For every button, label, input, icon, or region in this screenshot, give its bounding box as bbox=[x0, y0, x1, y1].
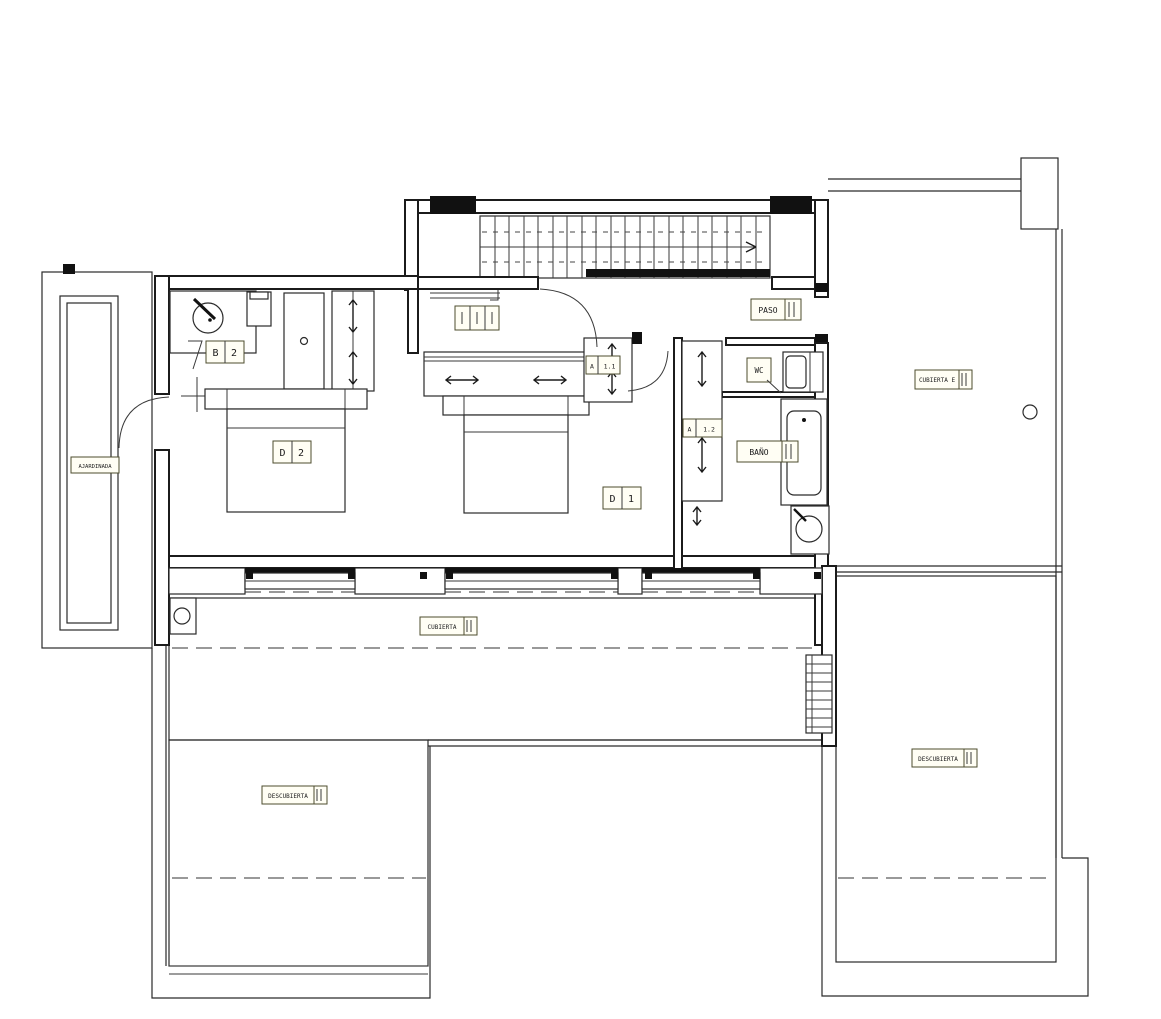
wall-main-bottom bbox=[169, 556, 822, 568]
wall-corridor-b bbox=[772, 277, 815, 289]
window-lintel bbox=[642, 568, 760, 573]
label-descubierta-right: DESCUBIERTA bbox=[912, 749, 977, 767]
floor-plan-canvas: PASO WC BAÑO B 2 D 2 D bbox=[0, 0, 1161, 1019]
label-b2: B 2 bbox=[206, 341, 244, 363]
d2-number: 2 bbox=[298, 448, 304, 459]
wing-top-right-step bbox=[1021, 158, 1058, 229]
column-right bbox=[770, 196, 812, 214]
label-wc: WC bbox=[747, 358, 781, 393]
wall-main-top bbox=[155, 276, 418, 289]
bano-label: BAÑO bbox=[749, 447, 768, 457]
a12-number: 1.2 bbox=[703, 426, 715, 434]
shower-drain-icon bbox=[301, 338, 308, 345]
shower-drain-icon bbox=[796, 516, 822, 542]
wall-wc-top bbox=[726, 338, 815, 345]
window-band bbox=[169, 568, 822, 594]
toilet-bowl bbox=[786, 356, 806, 388]
wardrobe-symbol-box bbox=[455, 306, 499, 330]
terrace-cubierta-center bbox=[169, 598, 822, 740]
door-swing-arc bbox=[119, 397, 169, 448]
column-left bbox=[430, 196, 476, 214]
label-cubierta-centro: CUBIERTA bbox=[420, 617, 477, 635]
terrace-edge-double-line bbox=[169, 966, 428, 974]
pier bbox=[618, 568, 642, 594]
label-d1: D 1 bbox=[603, 487, 641, 509]
label-a11: A 1.1 bbox=[586, 356, 620, 374]
window-lintel bbox=[245, 568, 355, 573]
door-swing-arc bbox=[628, 351, 668, 391]
d1-number: 1 bbox=[628, 494, 634, 505]
pergola-column-hatch bbox=[806, 655, 832, 733]
planter-post bbox=[63, 264, 75, 274]
wall-left-upper bbox=[155, 276, 169, 394]
cubierta-este-label: CUBIERTA E bbox=[919, 377, 956, 384]
window-2 bbox=[445, 568, 618, 592]
descubierta-right-label: DESCUBIERTA bbox=[918, 756, 958, 763]
wall-corridor-a bbox=[418, 277, 538, 289]
wing-bottom-edge bbox=[836, 566, 1062, 572]
bedroom-d1 bbox=[424, 306, 592, 513]
d1-letter: D bbox=[609, 494, 615, 505]
pier bbox=[355, 568, 445, 594]
wall-joint-b bbox=[815, 334, 828, 342]
label-descubierta-left: DESCUBIERTA bbox=[262, 786, 327, 804]
pier bbox=[169, 568, 245, 594]
descubierta-left-label: DESCUBIERTA bbox=[268, 793, 308, 800]
east-wing bbox=[828, 158, 1062, 572]
b2-number: 2 bbox=[231, 348, 237, 359]
washbasin-icon bbox=[193, 303, 223, 333]
label-cell bbox=[785, 299, 801, 320]
wall-stair-right bbox=[815, 200, 828, 290]
a11-letter: A bbox=[590, 363, 594, 371]
boundary-bottom-right bbox=[822, 746, 1088, 996]
a11-number: 1.1 bbox=[604, 363, 616, 371]
floor-plan-page: PASO WC BAÑO B 2 D 2 D bbox=[0, 0, 1161, 1019]
planter-ajardinada bbox=[42, 264, 152, 648]
wall-left-lower bbox=[155, 450, 169, 645]
mullion-mark bbox=[348, 572, 355, 579]
mullion-mark bbox=[246, 572, 253, 579]
terrace-tiles-left bbox=[169, 740, 428, 966]
b2-letter: B bbox=[212, 348, 218, 359]
d2-letter: D bbox=[279, 448, 285, 459]
wall-d2-partition bbox=[408, 289, 418, 353]
wing-top-wall bbox=[828, 179, 1021, 191]
mullion-mark bbox=[753, 572, 760, 579]
mullion-mark bbox=[611, 572, 618, 579]
paso-label: PASO bbox=[758, 306, 777, 315]
terrace-bottom-edge bbox=[428, 740, 822, 746]
terrace-tiles-right bbox=[836, 576, 1056, 962]
drain-icon bbox=[1023, 405, 1037, 419]
hatch-outline bbox=[806, 655, 832, 733]
boundary-bottom-left bbox=[152, 648, 430, 998]
basin-drain bbox=[208, 318, 212, 322]
wall-wc-bottom bbox=[722, 392, 815, 397]
boundary-right-double bbox=[1056, 229, 1062, 858]
terrace-descubierta-right bbox=[836, 576, 1056, 962]
sliding-wardrobe bbox=[424, 352, 592, 396]
label-cell bbox=[782, 441, 798, 462]
label-paso: PASO bbox=[751, 299, 801, 320]
tap-dot bbox=[802, 418, 806, 422]
label-cubierta-este: CUBIERTA E bbox=[915, 370, 972, 389]
wall-under-stair bbox=[586, 269, 770, 277]
mullion-mark bbox=[446, 572, 453, 579]
downpipe-icon bbox=[174, 608, 190, 624]
label-d2: D 2 bbox=[273, 441, 311, 463]
wc-label: WC bbox=[754, 366, 763, 375]
toilet-cistern bbox=[250, 292, 268, 299]
label-bano: BAÑO bbox=[737, 441, 798, 462]
door-swing-arrow-icon bbox=[693, 507, 701, 525]
headboard-shelf bbox=[443, 396, 589, 415]
wall-post bbox=[632, 332, 642, 344]
pier bbox=[760, 568, 822, 594]
label-ajardinada: AJARDINADA bbox=[71, 457, 119, 473]
a12-letter: A bbox=[688, 426, 692, 434]
headboard-shelf bbox=[205, 389, 367, 409]
misc-details bbox=[170, 598, 832, 733]
wall-joint-a bbox=[815, 283, 828, 292]
ajardinada-label: AJARDINADA bbox=[78, 464, 112, 470]
terrace-tiles-center bbox=[169, 598, 822, 740]
bed bbox=[464, 415, 568, 513]
cubierta-label: CUBIERTA bbox=[428, 624, 457, 631]
window-3 bbox=[642, 568, 760, 592]
label-a12: A 1.2 bbox=[683, 419, 722, 437]
window-1 bbox=[245, 568, 355, 592]
mullion-mark bbox=[420, 572, 427, 579]
wall-suite-partition bbox=[674, 338, 682, 585]
mullion-mark bbox=[814, 572, 821, 579]
mullion-mark bbox=[645, 572, 652, 579]
terrace-descubierta-left bbox=[169, 740, 428, 974]
window-lintel bbox=[445, 568, 618, 573]
